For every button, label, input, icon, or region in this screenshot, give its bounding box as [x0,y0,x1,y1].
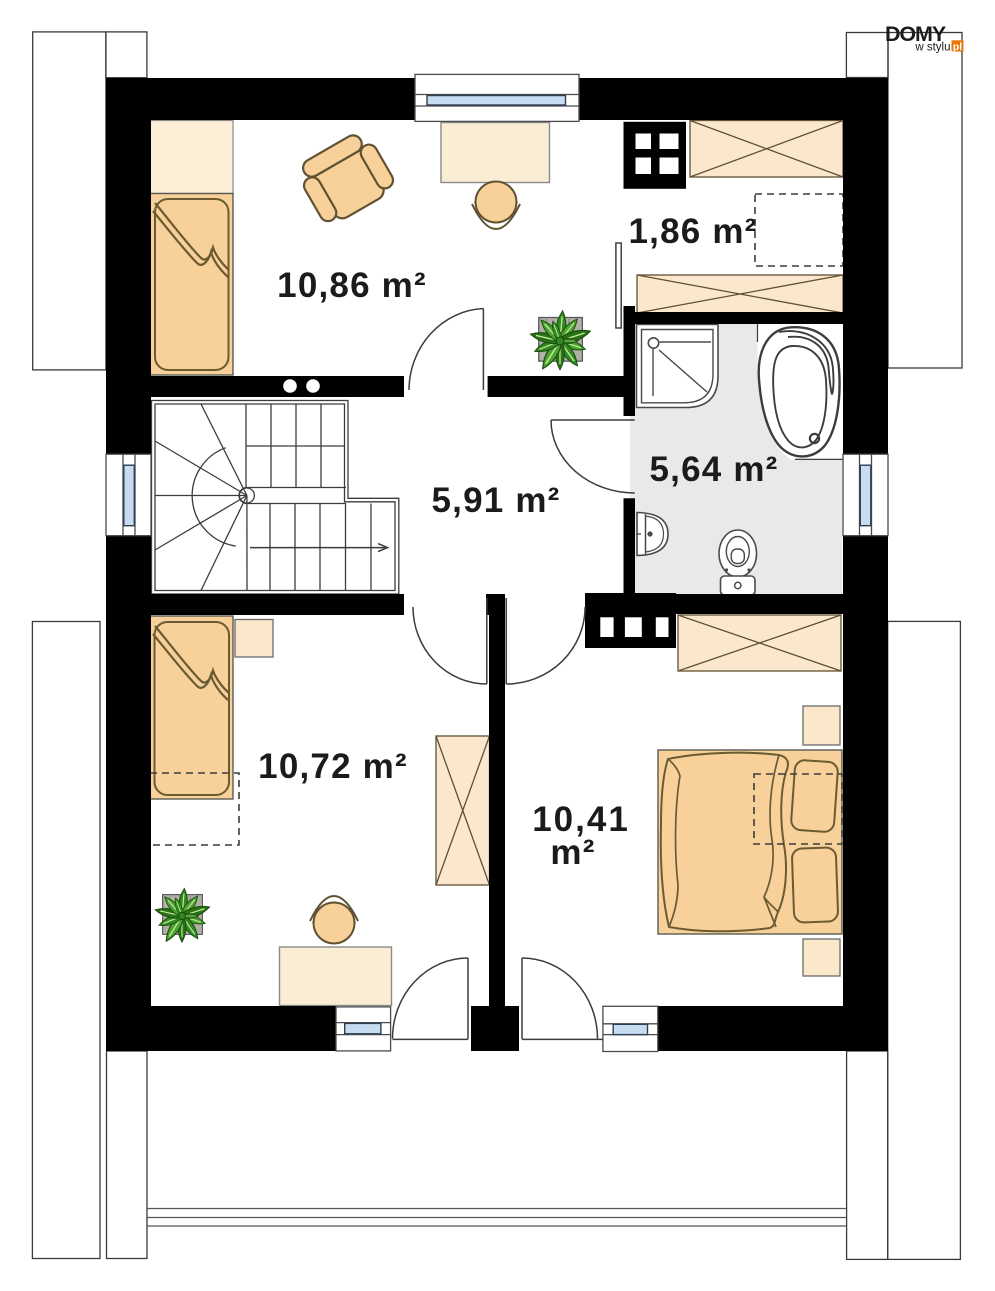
svg-text:5,64 m²: 5,64 m² [649,450,778,489]
svg-text:pl: pl [953,41,962,53]
svg-text:5,91 m²: 5,91 m² [431,481,560,520]
svg-text:m²: m² [550,833,595,872]
svg-text:10,72 m²: 10,72 m² [258,747,408,786]
svg-text:10,86 m²: 10,86 m² [277,266,427,305]
svg-text:1,86 m²: 1,86 m² [628,212,757,251]
svg-text:w stylu: w stylu [914,42,950,54]
